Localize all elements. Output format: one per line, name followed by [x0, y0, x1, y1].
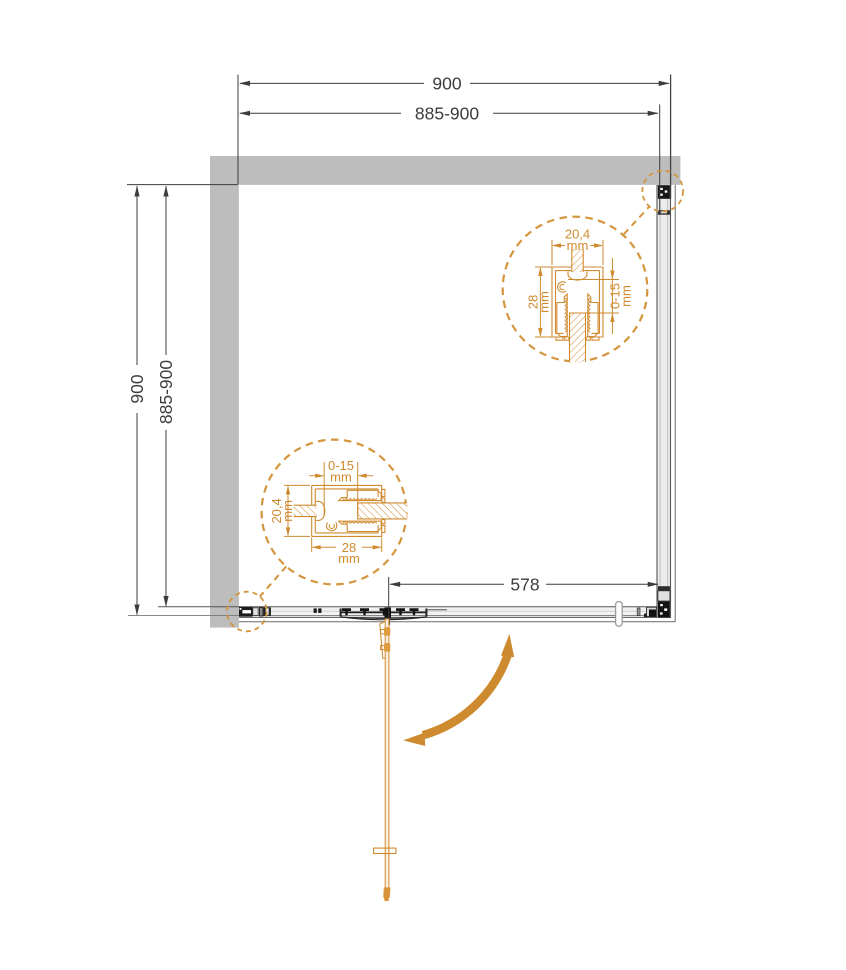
svg-text:mm: mm: [338, 551, 360, 566]
svg-text:mm: mm: [280, 500, 295, 522]
svg-text:885-900: 885-900: [156, 360, 176, 424]
svg-text:mm: mm: [567, 238, 589, 253]
svg-text:885-900: 885-900: [415, 103, 479, 123]
svg-text:578: 578: [510, 574, 539, 594]
svg-text:mm: mm: [619, 285, 634, 307]
svg-text:900: 900: [127, 374, 147, 403]
svg-text:mm: mm: [330, 469, 352, 484]
svg-text:mm: mm: [537, 291, 552, 313]
svg-text:900: 900: [432, 74, 461, 94]
